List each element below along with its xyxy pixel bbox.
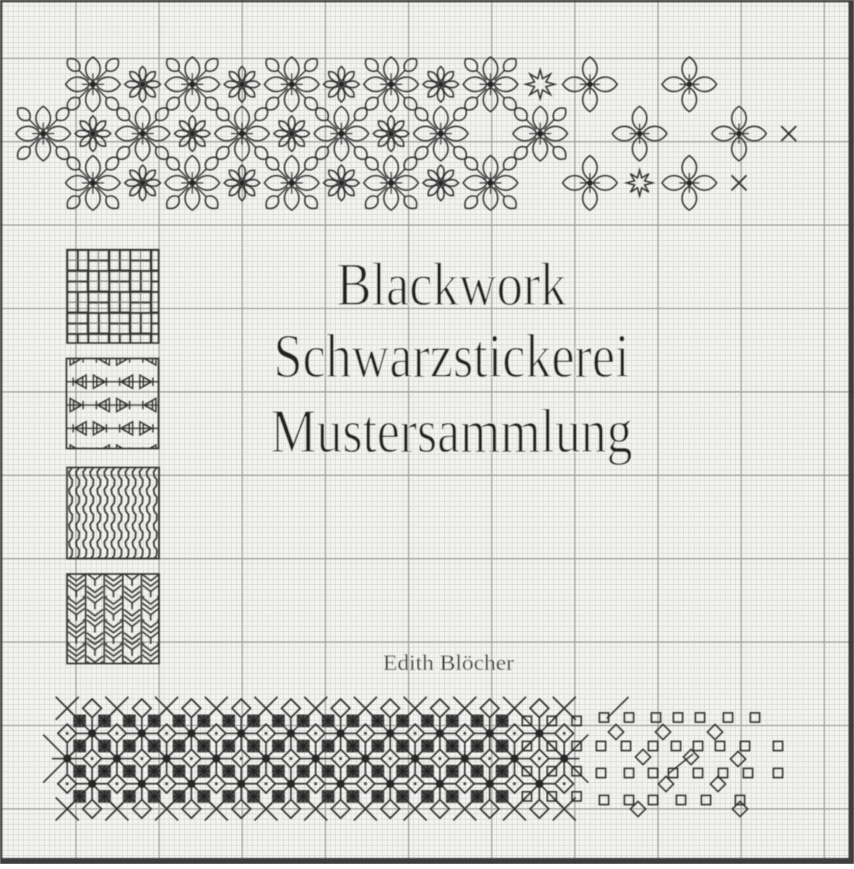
- svg-text:Edith Blöcher: Edith Blöcher: [383, 650, 515, 675]
- svg-text:Mustersammlung: Mustersammlung: [271, 396, 633, 466]
- svg-text:Schwarzstickerei: Schwarzstickerei: [274, 321, 630, 391]
- svg-text:Blackwork: Blackwork: [337, 252, 567, 319]
